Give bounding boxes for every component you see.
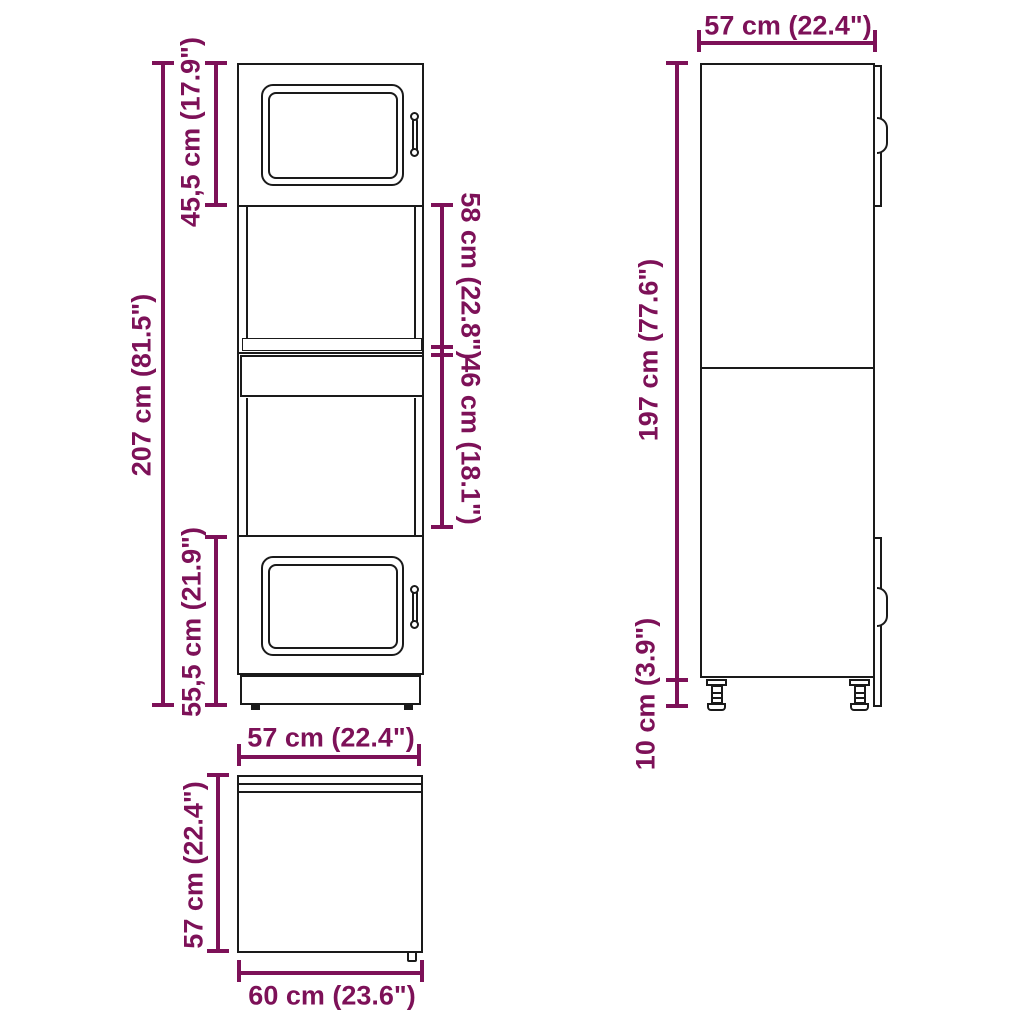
dim-bottom-door-height-tick-top xyxy=(205,535,227,539)
top-view-door-edge-line-2 xyxy=(237,791,423,793)
drawer-front xyxy=(240,355,424,397)
dim-side-depth-tick-left xyxy=(697,30,701,52)
dim-side-leg-height-tick-bottom xyxy=(666,704,688,708)
dim-upper-opening-line xyxy=(440,205,444,353)
dimension-diagram: 207 cm (81.5") 45,5 cm (17.9") 55,5 cm (… xyxy=(0,0,1024,1024)
dim-top-view-total-depth-line xyxy=(239,971,424,975)
dim-top-view-width-label: 57 cm (22.4") xyxy=(247,723,414,754)
dim-top-view-depth-tick-bottom xyxy=(207,949,229,953)
dim-top-view-width-line xyxy=(239,755,421,759)
dim-upper-opening-label: 58 cm (22.8") xyxy=(455,192,486,359)
dim-lower-opening-tick-bottom xyxy=(431,525,453,529)
top-view-door-edge-line-1 xyxy=(237,783,423,785)
front-left-foot xyxy=(251,705,260,710)
side-right-foot-base xyxy=(850,703,869,711)
dim-top-view-depth-tick-top xyxy=(207,773,229,777)
dim-lower-opening-line xyxy=(440,353,444,529)
upper-opening-right-panel-line xyxy=(414,207,416,338)
dim-top-view-depth-label: 57 cm (22.4") xyxy=(179,781,210,948)
lower-opening-left-panel-line xyxy=(246,398,248,535)
dim-top-door-height-label: 45,5 cm (17.9") xyxy=(176,37,207,227)
dim-bottom-door-height-label: 55,5 cm (21.9") xyxy=(177,527,208,717)
dim-side-body-height-tick-top xyxy=(666,61,688,65)
upper-opening-left-panel-line xyxy=(246,207,248,338)
lower-opening-right-panel-line xyxy=(414,398,416,535)
dim-top-view-depth-line xyxy=(216,775,220,953)
front-right-foot xyxy=(404,705,413,710)
dim-top-view-width-tick-left xyxy=(237,744,241,766)
dim-side-leg-height-line xyxy=(675,682,679,706)
dim-front-total-height-line xyxy=(161,63,165,707)
dim-top-door-height-tick-bottom xyxy=(205,203,227,207)
dim-top-door-height-line xyxy=(214,63,218,207)
side-left-foot-base xyxy=(707,703,726,711)
dim-side-depth-label: 57 cm (22.4") xyxy=(704,11,871,42)
dim-top-view-total-depth-tick-left xyxy=(237,960,241,982)
dim-side-body-height-label: 197 cm (77.6") xyxy=(634,259,665,441)
side-view-body xyxy=(700,63,875,678)
front-plinth xyxy=(240,675,421,705)
bottom-door-handle-top-dot xyxy=(410,585,419,594)
side-right-foot-thread-line-2 xyxy=(854,697,866,699)
top-view-handle-knob xyxy=(407,951,417,962)
dim-top-door-height-tick-top xyxy=(205,61,227,65)
dim-side-depth-tick-right xyxy=(873,30,877,52)
middle-divider-line xyxy=(239,352,424,354)
dim-top-view-total-depth-label: 60 cm (23.6") xyxy=(248,981,415,1012)
side-left-foot-thread-line-1 xyxy=(711,692,723,694)
side-right-foot-stem xyxy=(854,685,866,704)
dim-side-body-height-line xyxy=(675,63,679,682)
middle-shelf-band xyxy=(242,338,422,351)
side-left-foot-stem xyxy=(711,685,723,704)
dim-side-depth-line xyxy=(699,41,877,45)
bottom-door-handle-bottom-dot xyxy=(410,620,419,629)
side-right-foot-thread-line-1 xyxy=(854,692,866,694)
side-view-division-line xyxy=(700,367,875,369)
dim-front-total-height-tick-bottom xyxy=(152,703,174,707)
side-left-foot-thread-line-2 xyxy=(711,697,723,699)
side-bottom-door-handle xyxy=(877,587,888,627)
dim-side-leg-height-label: 10 cm (3.9") xyxy=(631,618,662,770)
side-top-door-handle xyxy=(877,117,888,154)
top-door-handle-bottom-dot xyxy=(410,148,419,157)
dim-top-view-width-tick-right xyxy=(417,744,421,766)
bottom-door-window-inner xyxy=(268,564,398,649)
top-door-handle-top-dot xyxy=(410,112,419,121)
dim-top-view-total-depth-tick-right xyxy=(420,960,424,982)
top-view-body xyxy=(237,775,423,953)
dim-bottom-door-height-tick-bottom xyxy=(205,703,227,707)
top-door-window-inner xyxy=(268,92,398,179)
dim-upper-opening-tick-top xyxy=(431,203,453,207)
dim-shared-tick-a xyxy=(431,345,453,349)
dim-front-total-height-tick-top xyxy=(152,61,174,65)
dim-bottom-door-height-line xyxy=(214,537,218,707)
dim-lower-opening-label: 46 cm (18.1") xyxy=(455,357,486,524)
dim-front-total-height-label: 207 cm (81.5") xyxy=(127,294,158,476)
